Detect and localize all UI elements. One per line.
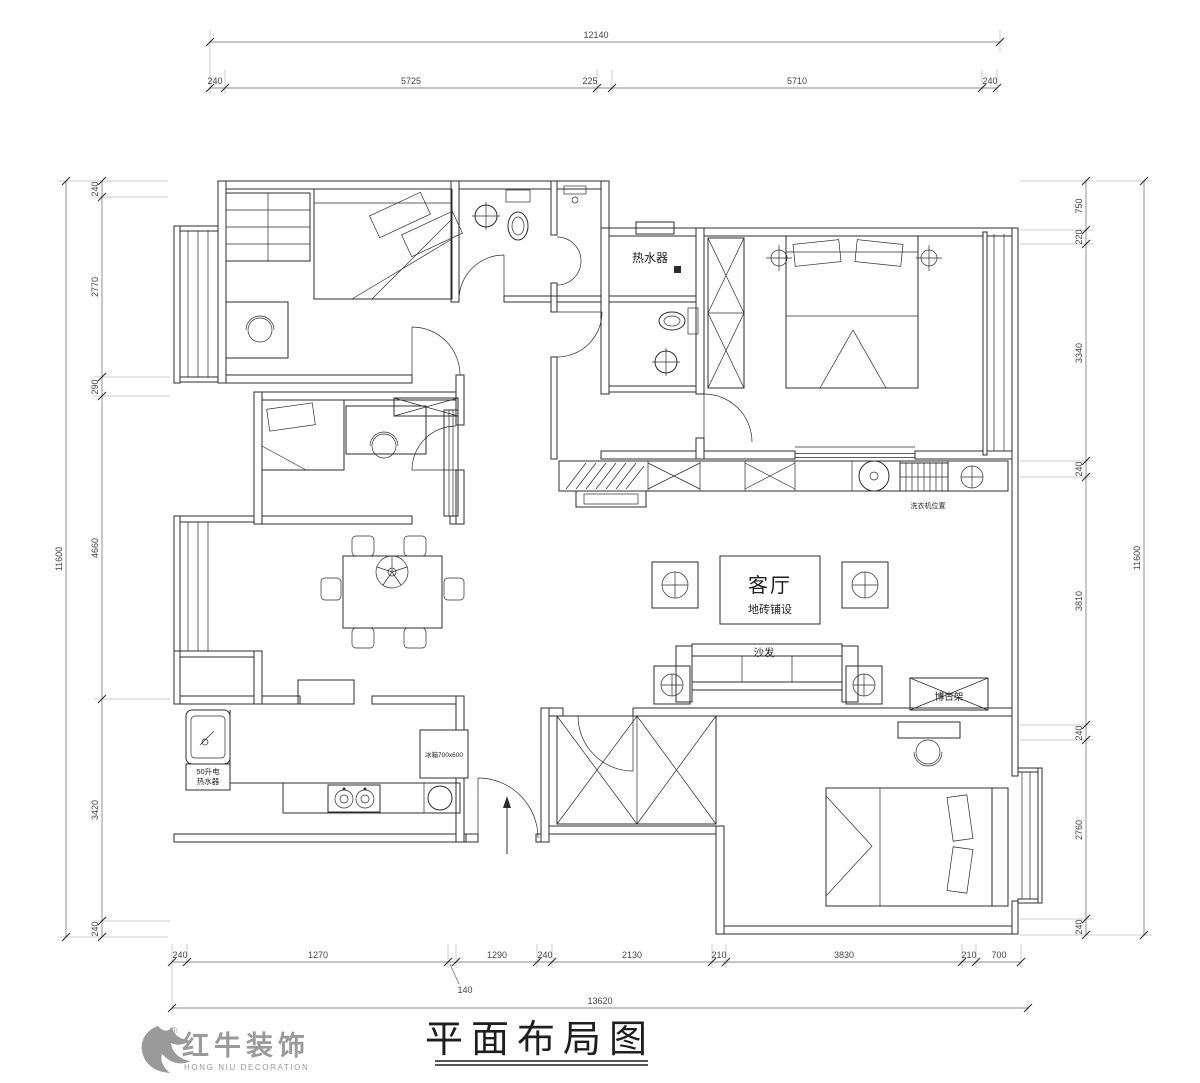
company-name-en: HONG NIU DECORATION (184, 1063, 309, 1072)
dim-label: 210 (961, 950, 976, 960)
dim-label: 240 (1074, 725, 1084, 740)
dim-label: 290 (90, 379, 100, 394)
pass-through (298, 680, 354, 704)
water-heater-label: 热水器 (632, 251, 668, 265)
shower-door (557, 237, 581, 285)
fridge-label: 冰箱700x600 (425, 750, 463, 759)
door-arc (704, 394, 752, 442)
dim-label: 12140 (583, 30, 608, 40)
dim-label: 2760 (1074, 820, 1084, 840)
chair (404, 536, 426, 556)
door-arc (459, 255, 504, 300)
dim-label: 2770 (90, 277, 100, 297)
round-sink (428, 786, 452, 810)
side-table (846, 666, 882, 704)
desk (898, 722, 960, 738)
bedroom-3 (262, 398, 458, 516)
pillow (947, 795, 973, 841)
dim-label: 13620 (587, 996, 612, 1006)
dim-top: 12140 240 5725 225 5710 240 (206, 30, 1004, 94)
dim-label: 240 (982, 76, 997, 86)
dim-label: 4660 (90, 538, 100, 558)
dim-label: 3340 (1074, 343, 1084, 363)
dim-label: 240 (1074, 461, 1084, 476)
bathroom-2 (557, 308, 698, 376)
stove (328, 785, 380, 812)
antique-shelf: 博古架 (910, 678, 988, 710)
sofa: 沙发 (676, 644, 858, 702)
dim-label: 11600 (1132, 546, 1142, 570)
bathroom-1 (459, 186, 586, 300)
door-arc (412, 426, 456, 470)
pillow (370, 192, 431, 237)
ceiling-lamp (766, 245, 792, 271)
dim-label: 210 (711, 950, 726, 960)
dim-label: 3810 (1074, 591, 1084, 611)
washing-machine (859, 461, 889, 491)
sofa-label: 沙发 (754, 646, 775, 659)
counter-edge (230, 710, 283, 783)
toilet (659, 312, 685, 330)
pillow (267, 403, 316, 431)
pendant-lamp (376, 556, 408, 588)
dim-label: 240 (537, 950, 552, 960)
desk (226, 302, 288, 358)
dim-label: 220 (1074, 229, 1084, 244)
headboard (992, 788, 1008, 906)
chair (248, 318, 272, 342)
dim-label: 240 (1074, 919, 1084, 934)
dim-label: 225 (582, 76, 597, 86)
dim-label: 5725 (401, 76, 421, 86)
stool (842, 562, 888, 608)
bed (314, 189, 452, 299)
dim-label: 3420 (90, 800, 100, 820)
chair (444, 578, 464, 600)
dim-label: 240 (90, 921, 100, 936)
bedroom-4 (557, 716, 1008, 906)
living-room-sublabel: 地砖铺设 (748, 602, 792, 616)
chair (352, 628, 374, 648)
heater-point (674, 266, 681, 273)
kitchen-heater-label-1: 50升电 (196, 766, 220, 776)
registered-mark: ® (170, 1026, 178, 1037)
dim-label: 11600 (54, 547, 64, 571)
dim-label: 5710 (787, 76, 807, 86)
side-table (654, 666, 690, 704)
kitchen-heater-label-2: 热水器 (197, 776, 220, 786)
dim-label: 750 (1074, 198, 1084, 213)
walls (174, 181, 1042, 934)
chair (916, 740, 940, 764)
desk (346, 406, 426, 454)
pillow (947, 847, 973, 893)
chair (404, 628, 426, 648)
washer-label: 洗衣机位置 (911, 501, 946, 510)
title-underline (435, 1061, 648, 1065)
dim-label: 2130 (622, 950, 642, 960)
dim-label: 1270 (308, 950, 328, 960)
chair (321, 578, 341, 600)
antique-shelf-label: 博古架 (935, 691, 964, 703)
dim-left: 11600 240 2770 290 4660 3420 240 (54, 177, 170, 941)
bed (786, 236, 918, 388)
tv (576, 491, 646, 507)
dim-label: 240 (172, 950, 187, 960)
company-name: 红牛装饰 (182, 1030, 310, 1061)
toilet-tank (506, 190, 530, 202)
dim-label: 1290 (487, 950, 507, 960)
floor-plan-page: 热水器 (0, 0, 1200, 1083)
entry (478, 778, 538, 854)
door-arc (412, 327, 460, 375)
door-arc (557, 312, 602, 357)
dim-bottom: 240 1270 140 1290 240 2130 210 3830 210 … (168, 944, 1032, 1014)
dim-label: 140 (457, 985, 472, 995)
pillow (793, 240, 841, 267)
title-block: ® 红牛装饰 HONG NIU DECORATION 平面布局图 (142, 1019, 655, 1073)
living-room-label: 客厅 (748, 574, 792, 597)
bed (826, 788, 1008, 906)
chair (352, 536, 374, 556)
ceiling-lamp (916, 245, 942, 271)
dim-label: 700 (991, 950, 1006, 960)
floor-plan-svg: 热水器 (0, 0, 1200, 1083)
wardrobe (557, 716, 716, 824)
dining-table (343, 556, 442, 628)
dining-area (321, 536, 464, 648)
pillow (855, 240, 903, 267)
drawing-title: 平面布局图 (425, 1019, 655, 1061)
bedroom-2 (704, 236, 942, 442)
company-logo: ® 红牛装饰 HONG NIU DECORATION (142, 1026, 310, 1073)
dim-label: 240 (90, 181, 100, 196)
stool (652, 562, 698, 608)
living-room: 洗衣机位置 客厅 地砖铺设 沙发 博古架 (559, 461, 1008, 710)
door-arc (578, 716, 633, 771)
bed (262, 400, 344, 470)
dim-label: 3830 (834, 950, 854, 960)
dim-label: 240 (207, 76, 222, 86)
bedroom-1 (226, 189, 462, 375)
toilet (508, 212, 528, 240)
